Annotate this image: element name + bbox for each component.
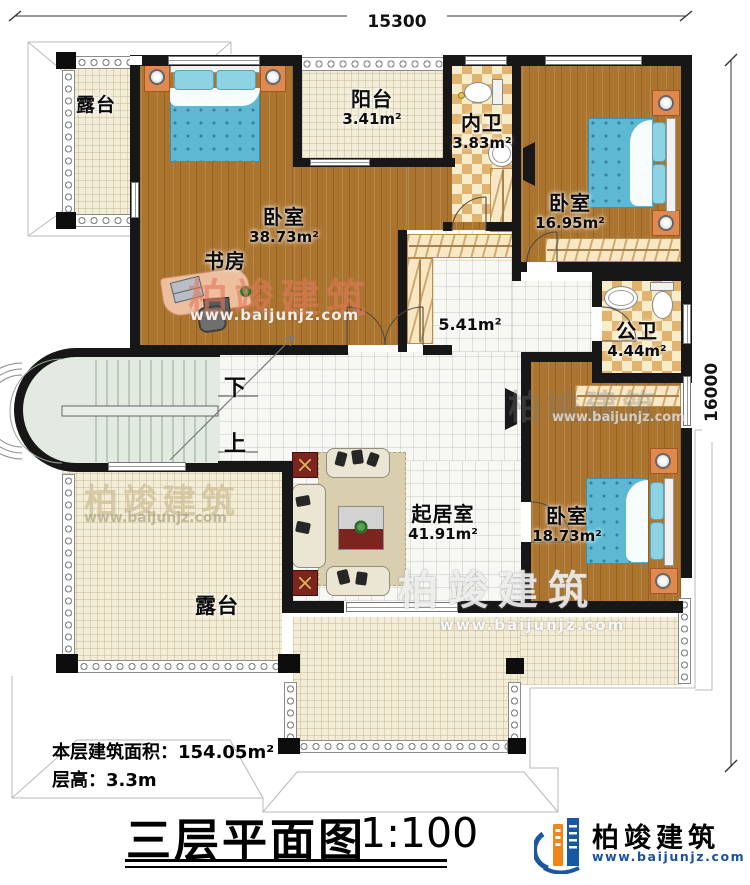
pillow-icon [652, 164, 666, 204]
room-name: 卧室 [510, 192, 630, 215]
railing-post [508, 738, 526, 754]
wall [592, 281, 602, 307]
plant-icon [352, 518, 370, 536]
wall [458, 601, 521, 613]
pillow-icon [650, 522, 664, 560]
hall-floor [218, 352, 521, 461]
floor-height-note: 层高：3.3m [52, 766, 157, 792]
wall [681, 55, 692, 275]
wall [282, 601, 344, 613]
toilet-tank-icon [492, 79, 503, 105]
wall [521, 542, 531, 603]
dimension-top: 15300 [347, 12, 447, 32]
room-label-terrace-top: 露台 [56, 95, 136, 117]
wall [521, 352, 531, 502]
title-underline [125, 866, 447, 868]
wall [592, 373, 692, 383]
room-label-bedroom-se: 卧室 18.73m² [507, 505, 627, 545]
lamp-icon [265, 69, 281, 85]
room-name: 卧室 [224, 206, 344, 229]
tv-icon [505, 388, 517, 430]
company-website: www.baijunjz.com [592, 849, 745, 864]
closet-rod [409, 245, 513, 247]
lamp-icon [149, 69, 165, 85]
wall [592, 272, 692, 281]
closet-rod [502, 170, 504, 230]
room-area: 38.73m² [224, 229, 344, 246]
pillow-icon [174, 70, 214, 90]
cushion-icon [355, 571, 368, 585]
toilet-icon [464, 82, 492, 103]
lamp-icon [658, 95, 674, 111]
wall [293, 55, 302, 167]
closet-rod [547, 249, 679, 251]
room-area: 18.73m² [507, 528, 627, 545]
room-label-study: 书房 [185, 250, 265, 273]
terrace-east-floor [520, 617, 681, 685]
terrace-main-railing-left [62, 474, 75, 662]
staircase-floor [23, 357, 220, 463]
window [131, 182, 139, 218]
wall [398, 230, 407, 352]
bed-headboard-icon [664, 478, 674, 566]
wall [423, 345, 452, 355]
toilet-icon [652, 291, 673, 319]
company-logo-icon [534, 812, 586, 874]
side-table-icon [292, 570, 318, 596]
window [545, 56, 642, 65]
room-area: 3.83m² [432, 135, 532, 152]
room-area: 3.41m² [322, 111, 422, 128]
room-name: 露台 [177, 594, 257, 618]
terrace-top-railing-top [75, 56, 132, 69]
bed-sheet-icon [626, 480, 648, 562]
terrace-top-railing-bottom [75, 214, 132, 227]
room-label-master-bedroom: 卧室 38.73m² [224, 206, 344, 246]
dimension-right: 16000 [702, 342, 726, 442]
patio-door [346, 602, 458, 612]
wall [512, 55, 521, 281]
railing-post [506, 658, 524, 674]
pillow-icon [652, 122, 666, 162]
wall [130, 345, 348, 355]
room-name: 内卫 [432, 112, 532, 135]
window [310, 159, 370, 166]
floor-plan-canvas: 柏竣建筑 www.baijunjz.com 柏竣建筑 www.baijunjz.… [0, 0, 750, 885]
room-area: 5.41m² [410, 316, 530, 334]
balcony-railing [300, 57, 445, 71]
terrace-door-gap [130, 56, 142, 65]
room-name: 卧室 [507, 505, 627, 528]
master-bedroom-floor-ext [293, 167, 407, 345]
room-area: 16.95m² [510, 215, 630, 232]
room-label-shared-bath: 公卫 4.44m² [577, 320, 697, 360]
stair-up-label: 上 [220, 432, 250, 457]
terrace-center-floor [293, 617, 520, 750]
wall [282, 461, 293, 613]
railing-post [278, 654, 300, 673]
toilet-tank-icon [650, 282, 674, 291]
desk-chair-icon [196, 304, 227, 334]
room-label-bedroom-ne: 卧室 16.95m² [510, 192, 630, 232]
wall [521, 262, 527, 272]
room-name: 起居室 [383, 503, 503, 526]
wall [557, 262, 692, 272]
scale-label: 1:100 [360, 809, 478, 857]
window [465, 56, 507, 65]
terrace-center-railing-left [284, 682, 297, 744]
side-table-icon [292, 452, 318, 478]
room-name: 阳台 [322, 88, 422, 111]
railing-post [56, 52, 76, 69]
railing-post [56, 654, 78, 673]
pillow-icon [650, 482, 664, 520]
room-area: 4.44m² [577, 343, 697, 360]
room-label-balcony: 阳台 3.41m² [322, 88, 422, 128]
terrace-top-railing-left [62, 70, 75, 214]
bed-headboard-icon [666, 118, 676, 212]
railing-post [278, 738, 300, 754]
closet-rod [577, 395, 679, 397]
pillow-icon [216, 70, 256, 90]
railing-post [56, 212, 76, 229]
towel-hook-icon [458, 92, 465, 99]
plant-icon [238, 284, 253, 299]
wall [521, 601, 683, 613]
terrace-main-railing-bottom [77, 660, 282, 673]
room-label-ensuite-bath: 内卫 3.83m² [432, 112, 532, 152]
room-name: 露台 [56, 95, 136, 117]
room-label-terrace-main: 露台 [177, 594, 257, 618]
room-name: 公卫 [577, 320, 697, 343]
window [168, 56, 260, 65]
window [108, 462, 186, 471]
terrace-main-floor [62, 470, 282, 670]
bed-sheet-icon [630, 120, 652, 206]
terrace-center-railing-right [508, 682, 521, 744]
window [683, 376, 691, 426]
stair-down-label: 下 [220, 376, 250, 401]
lamp-icon [658, 215, 674, 231]
room-name: 书房 [185, 250, 265, 273]
sink-icon [604, 286, 638, 310]
lamp-icon [655, 573, 671, 589]
bed-sheet-icon [170, 88, 260, 106]
title-underline [125, 859, 447, 862]
wall [443, 222, 452, 231]
wall [681, 428, 692, 578]
room-area: 41.91m² [383, 526, 503, 543]
cushion-icon [351, 449, 364, 464]
lamp-icon [655, 453, 671, 469]
terrace-center-railing-bottom [297, 740, 508, 753]
room-label-hallway: 5.41m² [410, 316, 530, 334]
floor-area-note: 本层建筑面积：154.05m² [52, 738, 274, 764]
room-label-living-room: 起居室 41.91m² [383, 503, 503, 543]
